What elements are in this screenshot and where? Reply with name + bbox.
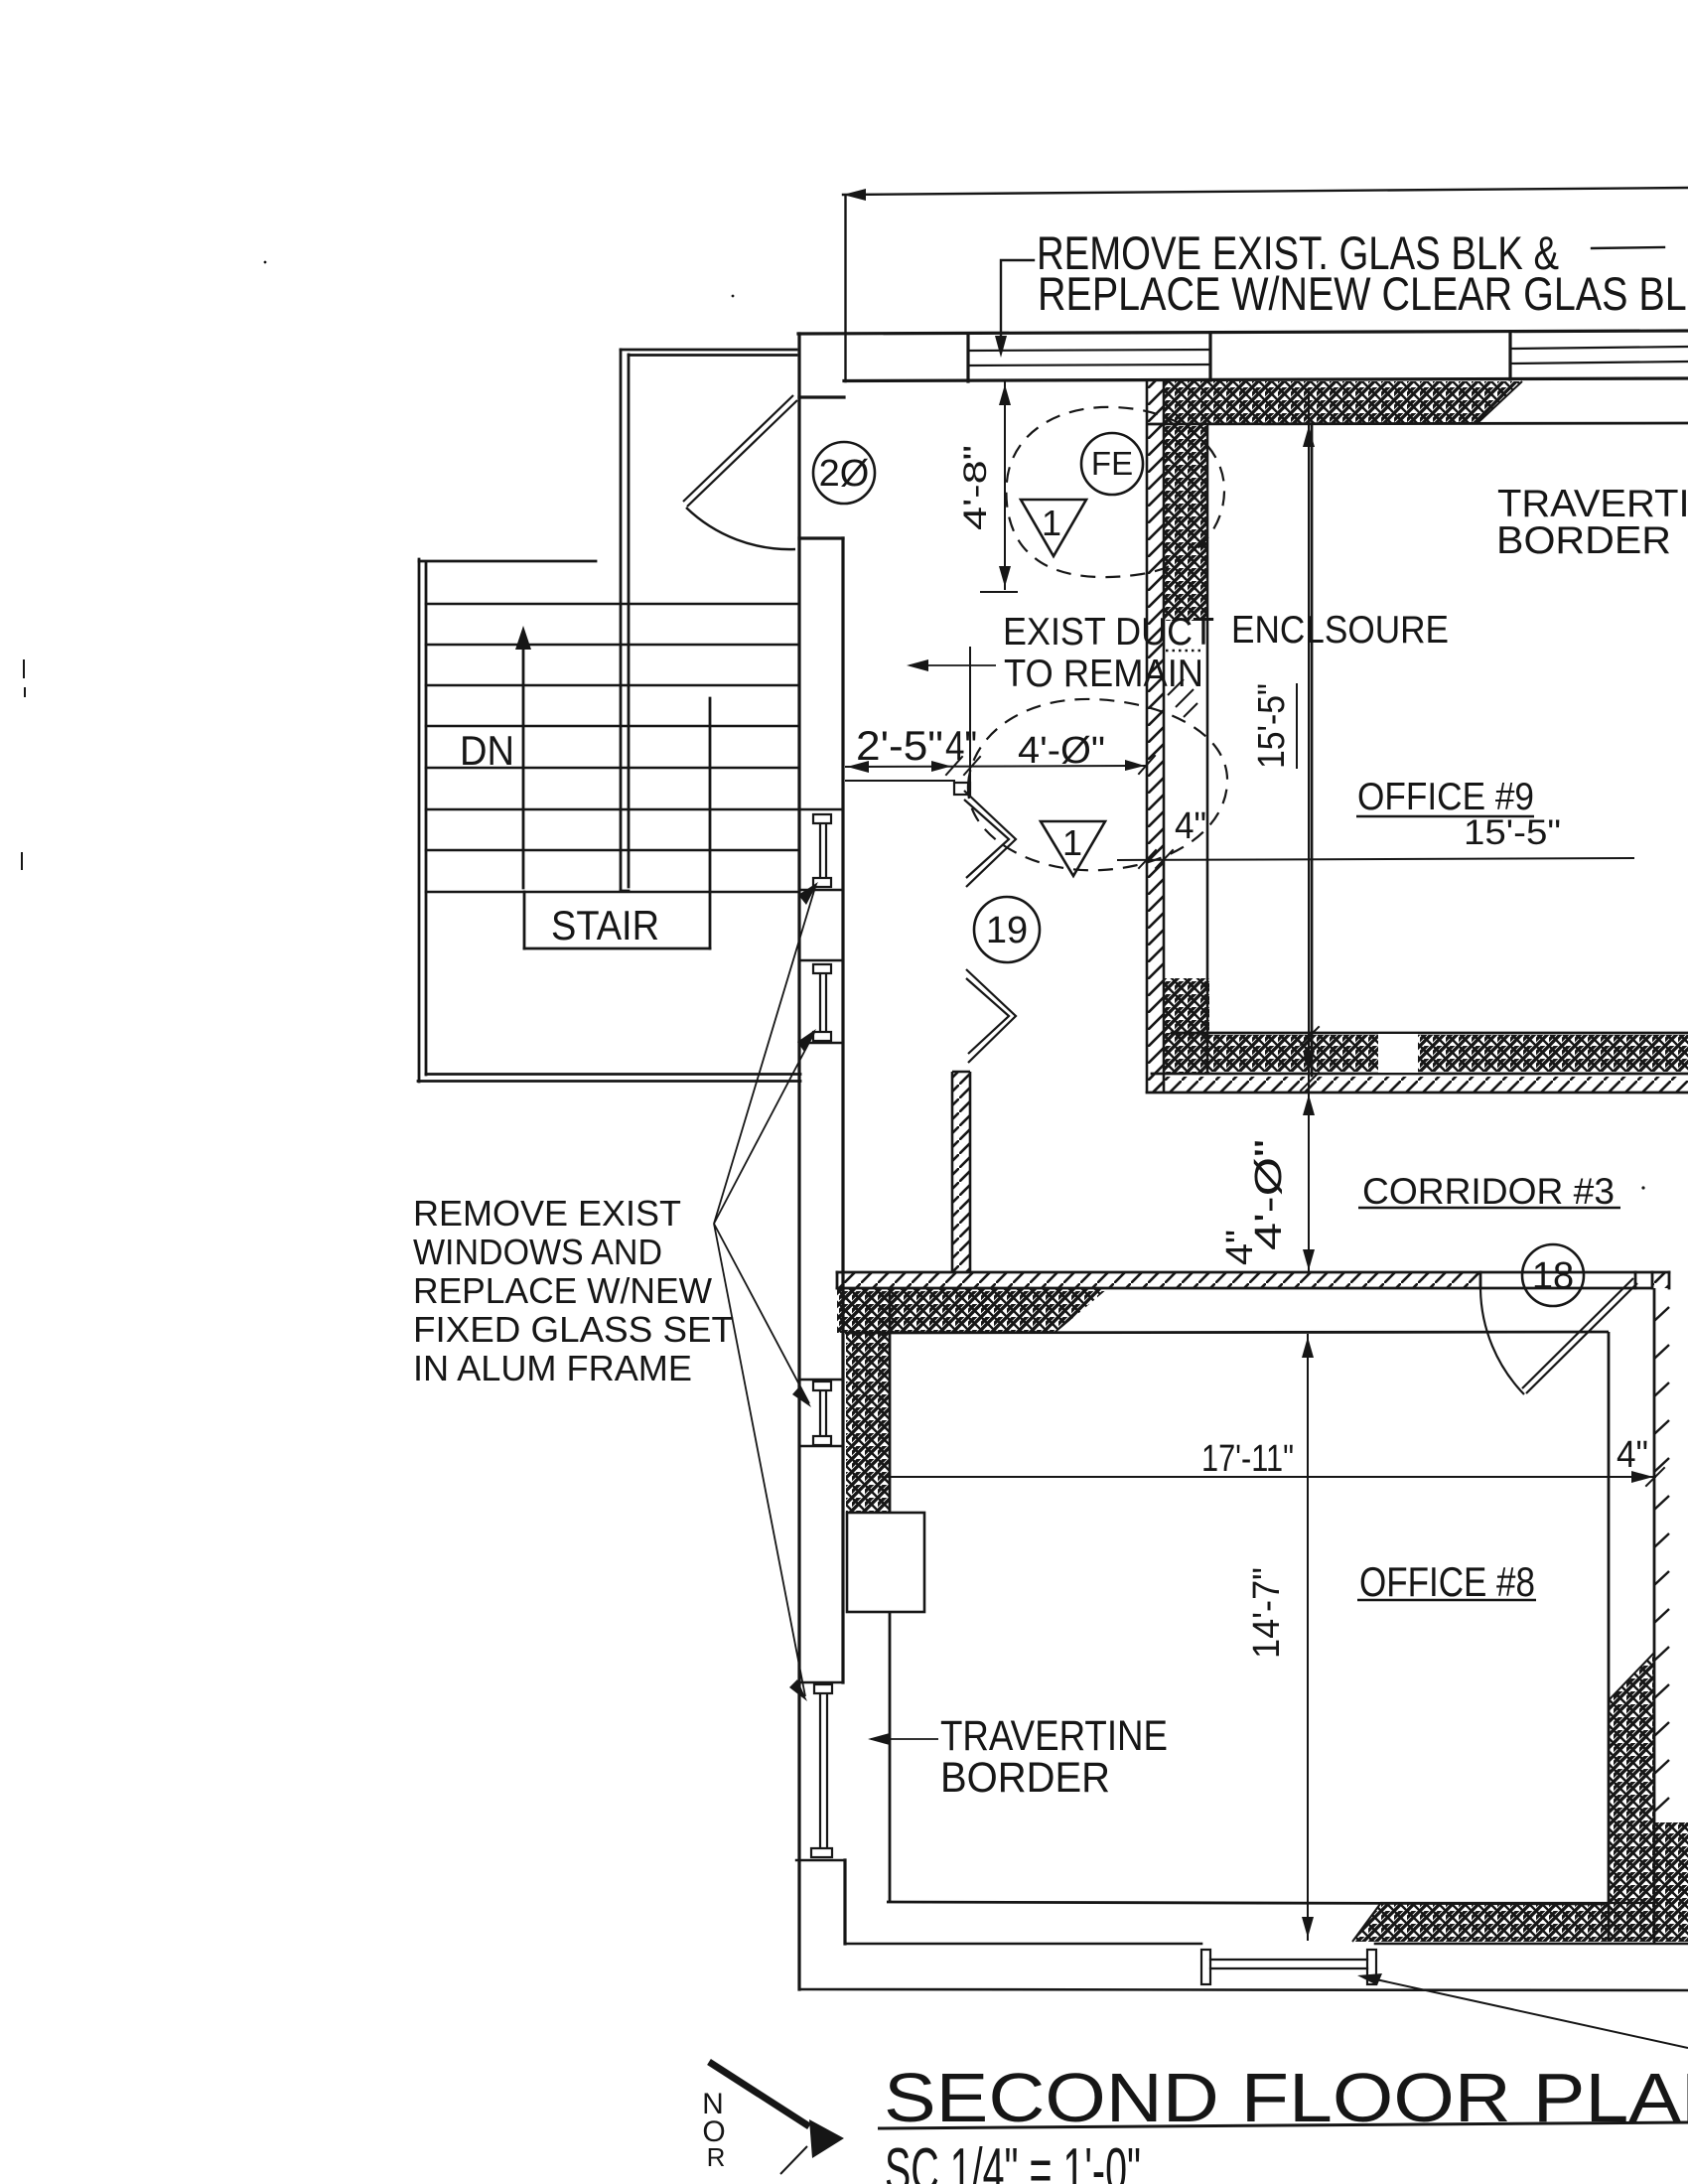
svg-text:14'-7": 14'-7"	[1246, 1567, 1288, 1659]
svg-text:4": 4"	[1219, 1230, 1261, 1265]
svg-text:IN ALUM FRAME: IN ALUM FRAME	[413, 1348, 692, 1388]
svg-text:2'-5": 2'-5"	[856, 722, 943, 769]
svg-text:15'-5": 15'-5"	[1251, 683, 1293, 769]
svg-text:1: 1	[1062, 822, 1082, 863]
svg-text:FE: FE	[1091, 445, 1133, 482]
svg-text:REMOVE EXIST: REMOVE EXIST	[413, 1193, 681, 1234]
svg-text:SC 1/4" = 1'-0": SC 1/4" = 1'-0"	[885, 2136, 1141, 2184]
svg-text:DN: DN	[460, 727, 514, 774]
svg-text:EXIST DUCT: EXIST DUCT	[1003, 611, 1214, 654]
svg-text:OFFICE #8: OFFICE #8	[1359, 1558, 1535, 1605]
svg-text:OFFICE #9: OFFICE #9	[1357, 776, 1534, 818]
svg-text:15'-5": 15'-5"	[1464, 813, 1561, 852]
svg-text:1: 1	[1042, 503, 1061, 543]
svg-text:BORDER: BORDER	[1496, 519, 1671, 562]
svg-text:4'-Ø": 4'-Ø"	[1018, 730, 1105, 772]
svg-text:4": 4"	[945, 722, 977, 769]
svg-text:TO REMAIN: TO REMAIN	[1004, 653, 1203, 695]
svg-text:ENCLSOURE: ENCLSOURE	[1231, 609, 1449, 652]
svg-text:WINDOWS AND: WINDOWS AND	[413, 1232, 662, 1272]
svg-text:REPLACE W/NEW: REPLACE W/NEW	[413, 1270, 712, 1311]
svg-text:R: R	[707, 2142, 726, 2172]
svg-text:17'-11": 17'-11"	[1201, 1438, 1294, 1480]
svg-text:STAIR: STAIR	[551, 902, 659, 948]
svg-text:FIXED GLASS SET: FIXED GLASS SET	[413, 1309, 734, 1350]
svg-text:4": 4"	[1617, 1434, 1648, 1476]
svg-text:2Ø: 2Ø	[819, 453, 870, 495]
svg-text:19: 19	[986, 910, 1028, 951]
svg-text:BORDER: BORDER	[940, 1754, 1110, 1802]
svg-text:TRAVERTINE: TRAVERTINE	[940, 1712, 1168, 1760]
svg-text:4'-8": 4'-8"	[957, 445, 993, 530]
svg-text:REPLACE W/NEW CLEAR GLAS BLK: REPLACE W/NEW CLEAR GLAS BLK	[1038, 267, 1688, 320]
svg-text:4": 4"	[1175, 805, 1206, 847]
svg-text:CORRIDOR #3: CORRIDOR #3	[1362, 1171, 1615, 1212]
svg-text:18: 18	[1532, 1255, 1574, 1297]
